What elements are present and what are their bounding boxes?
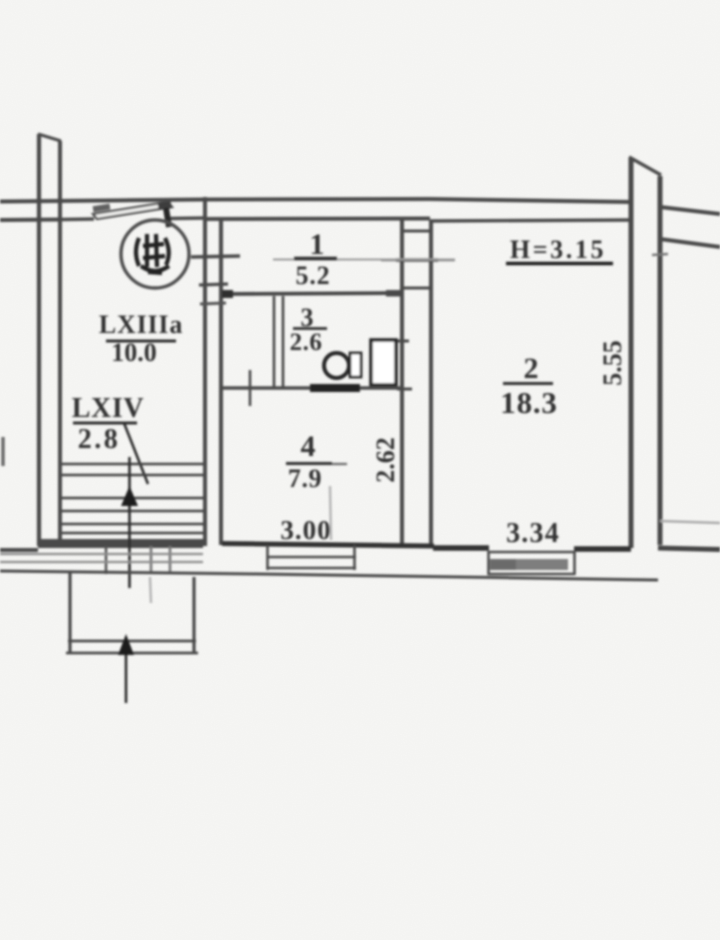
svg-text:2.62: 2.62	[371, 437, 400, 483]
svg-text:2.8: 2.8	[78, 424, 121, 455]
svg-text:LXIV: LXIV	[72, 393, 144, 424]
svg-text:2.6: 2.6	[290, 329, 323, 356]
svg-text:18.3: 18.3	[500, 385, 557, 420]
svg-text:2: 2	[524, 352, 539, 385]
svg-text:5.55: 5.55	[598, 340, 627, 386]
svg-text:7.9: 7.9	[288, 464, 322, 493]
svg-text:LXIIIa: LXIIIa	[99, 310, 183, 339]
svg-text:10.0: 10.0	[111, 338, 157, 367]
svg-text:5.2: 5.2	[296, 261, 331, 290]
svg-text:1: 1	[310, 228, 325, 261]
svg-text:3.00: 3.00	[280, 515, 331, 545]
svg-text:H=3.15: H=3.15	[510, 235, 606, 264]
svg-text:4: 4	[301, 430, 316, 463]
svg-text:3.34: 3.34	[506, 518, 560, 549]
